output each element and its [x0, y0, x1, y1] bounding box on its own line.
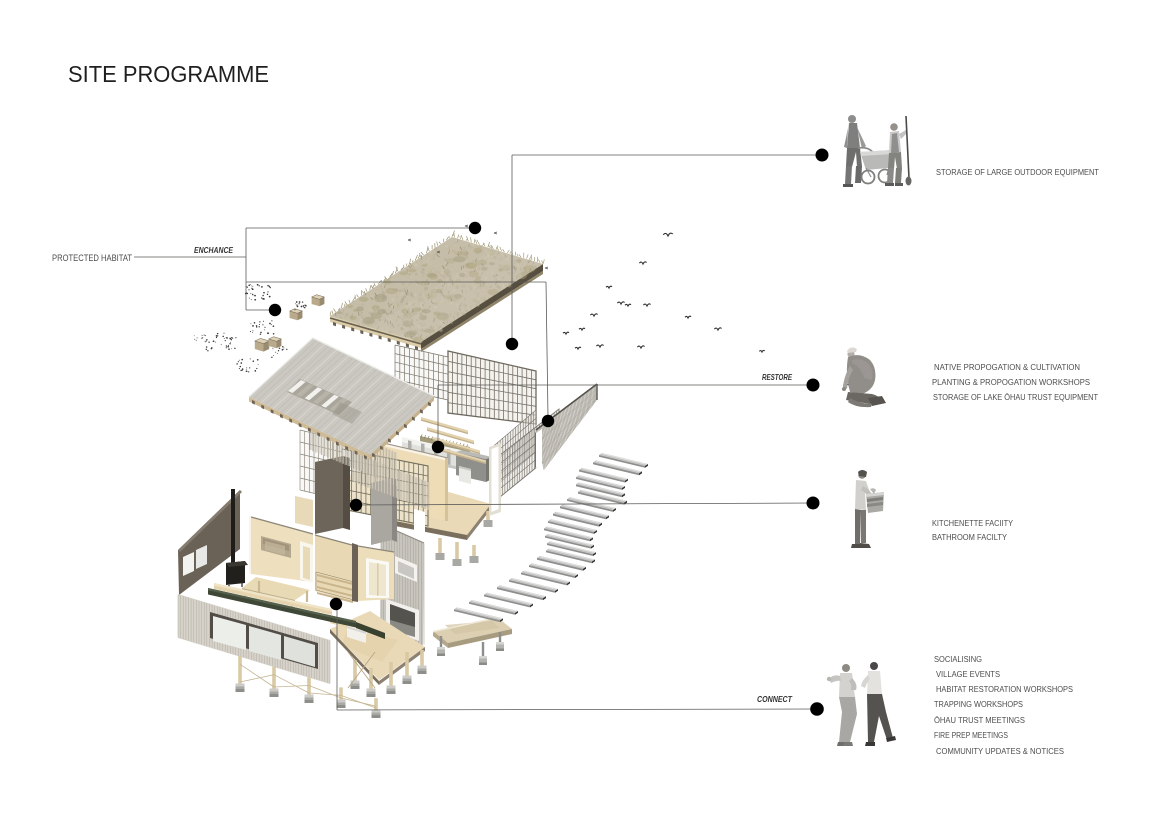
- svg-text:BATHROOM FACILTY: BATHROOM FACILTY: [932, 532, 1007, 542]
- svg-text:CONNECT: CONNECT: [757, 694, 793, 704]
- svg-text:SITE PROGRAMME: SITE PROGRAMME: [68, 61, 269, 87]
- svg-text:PROTECTED HABITAT: PROTECTED HABITAT: [52, 253, 132, 263]
- svg-text:ENCHANCE: ENCHANCE: [194, 245, 233, 255]
- svg-text:STORAGE OF LARGE OUTDOOR EQUIP: STORAGE OF LARGE OUTDOOR EQUIPMENT: [936, 167, 1100, 177]
- svg-text:SOCIALISING: SOCIALISING: [934, 654, 982, 664]
- svg-text:COMMUNITY UPDATES & NOTICES: COMMUNITY UPDATES & NOTICES: [936, 746, 1064, 756]
- svg-text:KITCHENETTE FACIITY: KITCHENETTE FACIITY: [932, 518, 1013, 528]
- svg-text:NATIVE PROPOGATION & CULTIVATI: NATIVE PROPOGATION & CULTIVATION: [934, 362, 1080, 372]
- svg-text:STORAGE OF LAKE ŌHAU TRUST EQU: STORAGE OF LAKE ŌHAU TRUST EQUIPMENT: [933, 392, 1099, 402]
- svg-text:PLANTING & PROPOGATION WORKSHO: PLANTING & PROPOGATION WORKSHOPS: [932, 377, 1090, 387]
- svg-text:HABITAT RESTORATION WORKSHOPS: HABITAT RESTORATION WORKSHOPS: [936, 684, 1073, 694]
- svg-text:RESTORE: RESTORE: [762, 372, 792, 382]
- svg-text:ŌHAU TRUST MEETINGS: ŌHAU TRUST MEETINGS: [934, 715, 1025, 725]
- svg-text:TRAPPING WORKSHOPS: TRAPPING WORKSHOPS: [934, 699, 1023, 709]
- svg-text:VILLAGE EVENTS: VILLAGE EVENTS: [936, 669, 1000, 679]
- svg-text:FIRE PREP MEETINGS: FIRE PREP MEETINGS: [934, 730, 1008, 740]
